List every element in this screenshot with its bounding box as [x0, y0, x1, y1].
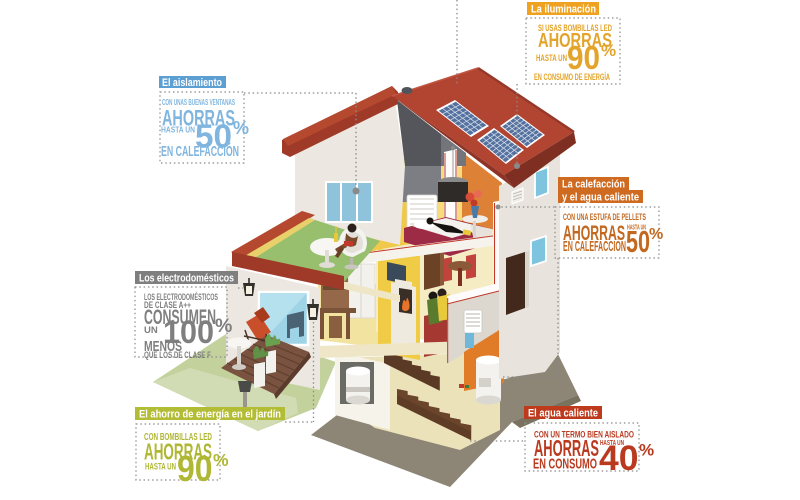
svg-text:%: %: [215, 315, 232, 337]
svg-text:El aislamiento: El aislamiento: [162, 77, 222, 89]
svg-text:50: 50: [626, 224, 650, 259]
svg-text:HASTA UN: HASTA UN: [161, 125, 195, 135]
svg-text:HASTA UN: HASTA UN: [145, 462, 176, 472]
svg-text:EN CALEFACCIÓN: EN CALEFACCIÓN: [161, 142, 239, 160]
svg-text:Los electrodomésticos: Los electrodomésticos: [139, 273, 234, 285]
svg-text:La iluminación: La iluminación: [531, 4, 596, 16]
svg-text:%: %: [649, 226, 663, 243]
svg-text:El ahorro de energía en el jar: El ahorro de energía en el jardín: [139, 409, 281, 421]
svg-text:EN CALEFACCIÓN: EN CALEFACCIÓN: [563, 237, 626, 255]
svg-text:QUE LOS DE CLASE F: QUE LOS DE CLASE F: [144, 350, 211, 360]
svg-text:EN CONSUMO: EN CONSUMO: [533, 456, 597, 473]
svg-text:%: %: [233, 118, 249, 138]
svg-text:%: %: [639, 441, 654, 460]
svg-text:La calefacción: La calefacción: [562, 179, 625, 191]
svg-text:90: 90: [177, 448, 213, 489]
svg-text:EN CONSUMO DE ENERGÍA: EN CONSUMO DE ENERGÍA: [534, 72, 610, 83]
svg-text:El agua caliente: El agua caliente: [528, 408, 598, 420]
svg-text:40: 40: [599, 439, 639, 478]
svg-text:%: %: [601, 41, 616, 60]
svg-text:y el agua caliente: y el agua caliente: [562, 192, 639, 204]
svg-text:HASTA UN: HASTA UN: [536, 53, 567, 63]
svg-text:UN: UN: [144, 325, 158, 336]
svg-text:%: %: [213, 450, 229, 470]
